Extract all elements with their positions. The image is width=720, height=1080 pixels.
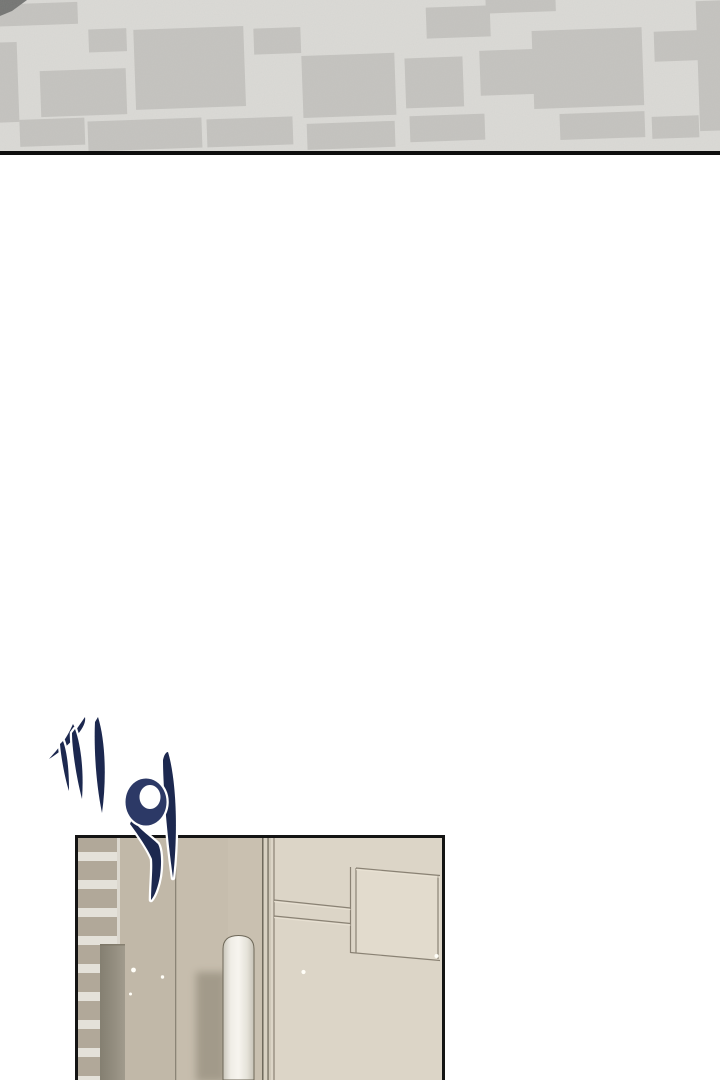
sfx-descender-1 xyxy=(60,741,69,791)
door-frame xyxy=(262,838,271,1080)
comic-page: 끼익 xyxy=(0,0,720,1080)
sfx-ik-circle xyxy=(126,779,167,826)
gray-pillar xyxy=(100,944,125,1080)
sfx-descender-2 xyxy=(72,729,83,799)
pattern-grain-texture xyxy=(0,0,720,151)
hallway-panel xyxy=(75,835,445,1080)
ceiling-pattern-panel xyxy=(0,0,720,151)
wall-left xyxy=(120,838,176,1080)
sfx-descender-3 xyxy=(95,717,105,813)
wall-groove-left xyxy=(175,838,176,1080)
white-cylinder xyxy=(223,936,254,1080)
wall-right-inset xyxy=(356,869,440,960)
cylinder-shadow xyxy=(196,972,226,1080)
hallway-art xyxy=(78,838,442,1080)
panel-border-line xyxy=(0,151,720,155)
sfx-swoosh xyxy=(49,717,85,759)
